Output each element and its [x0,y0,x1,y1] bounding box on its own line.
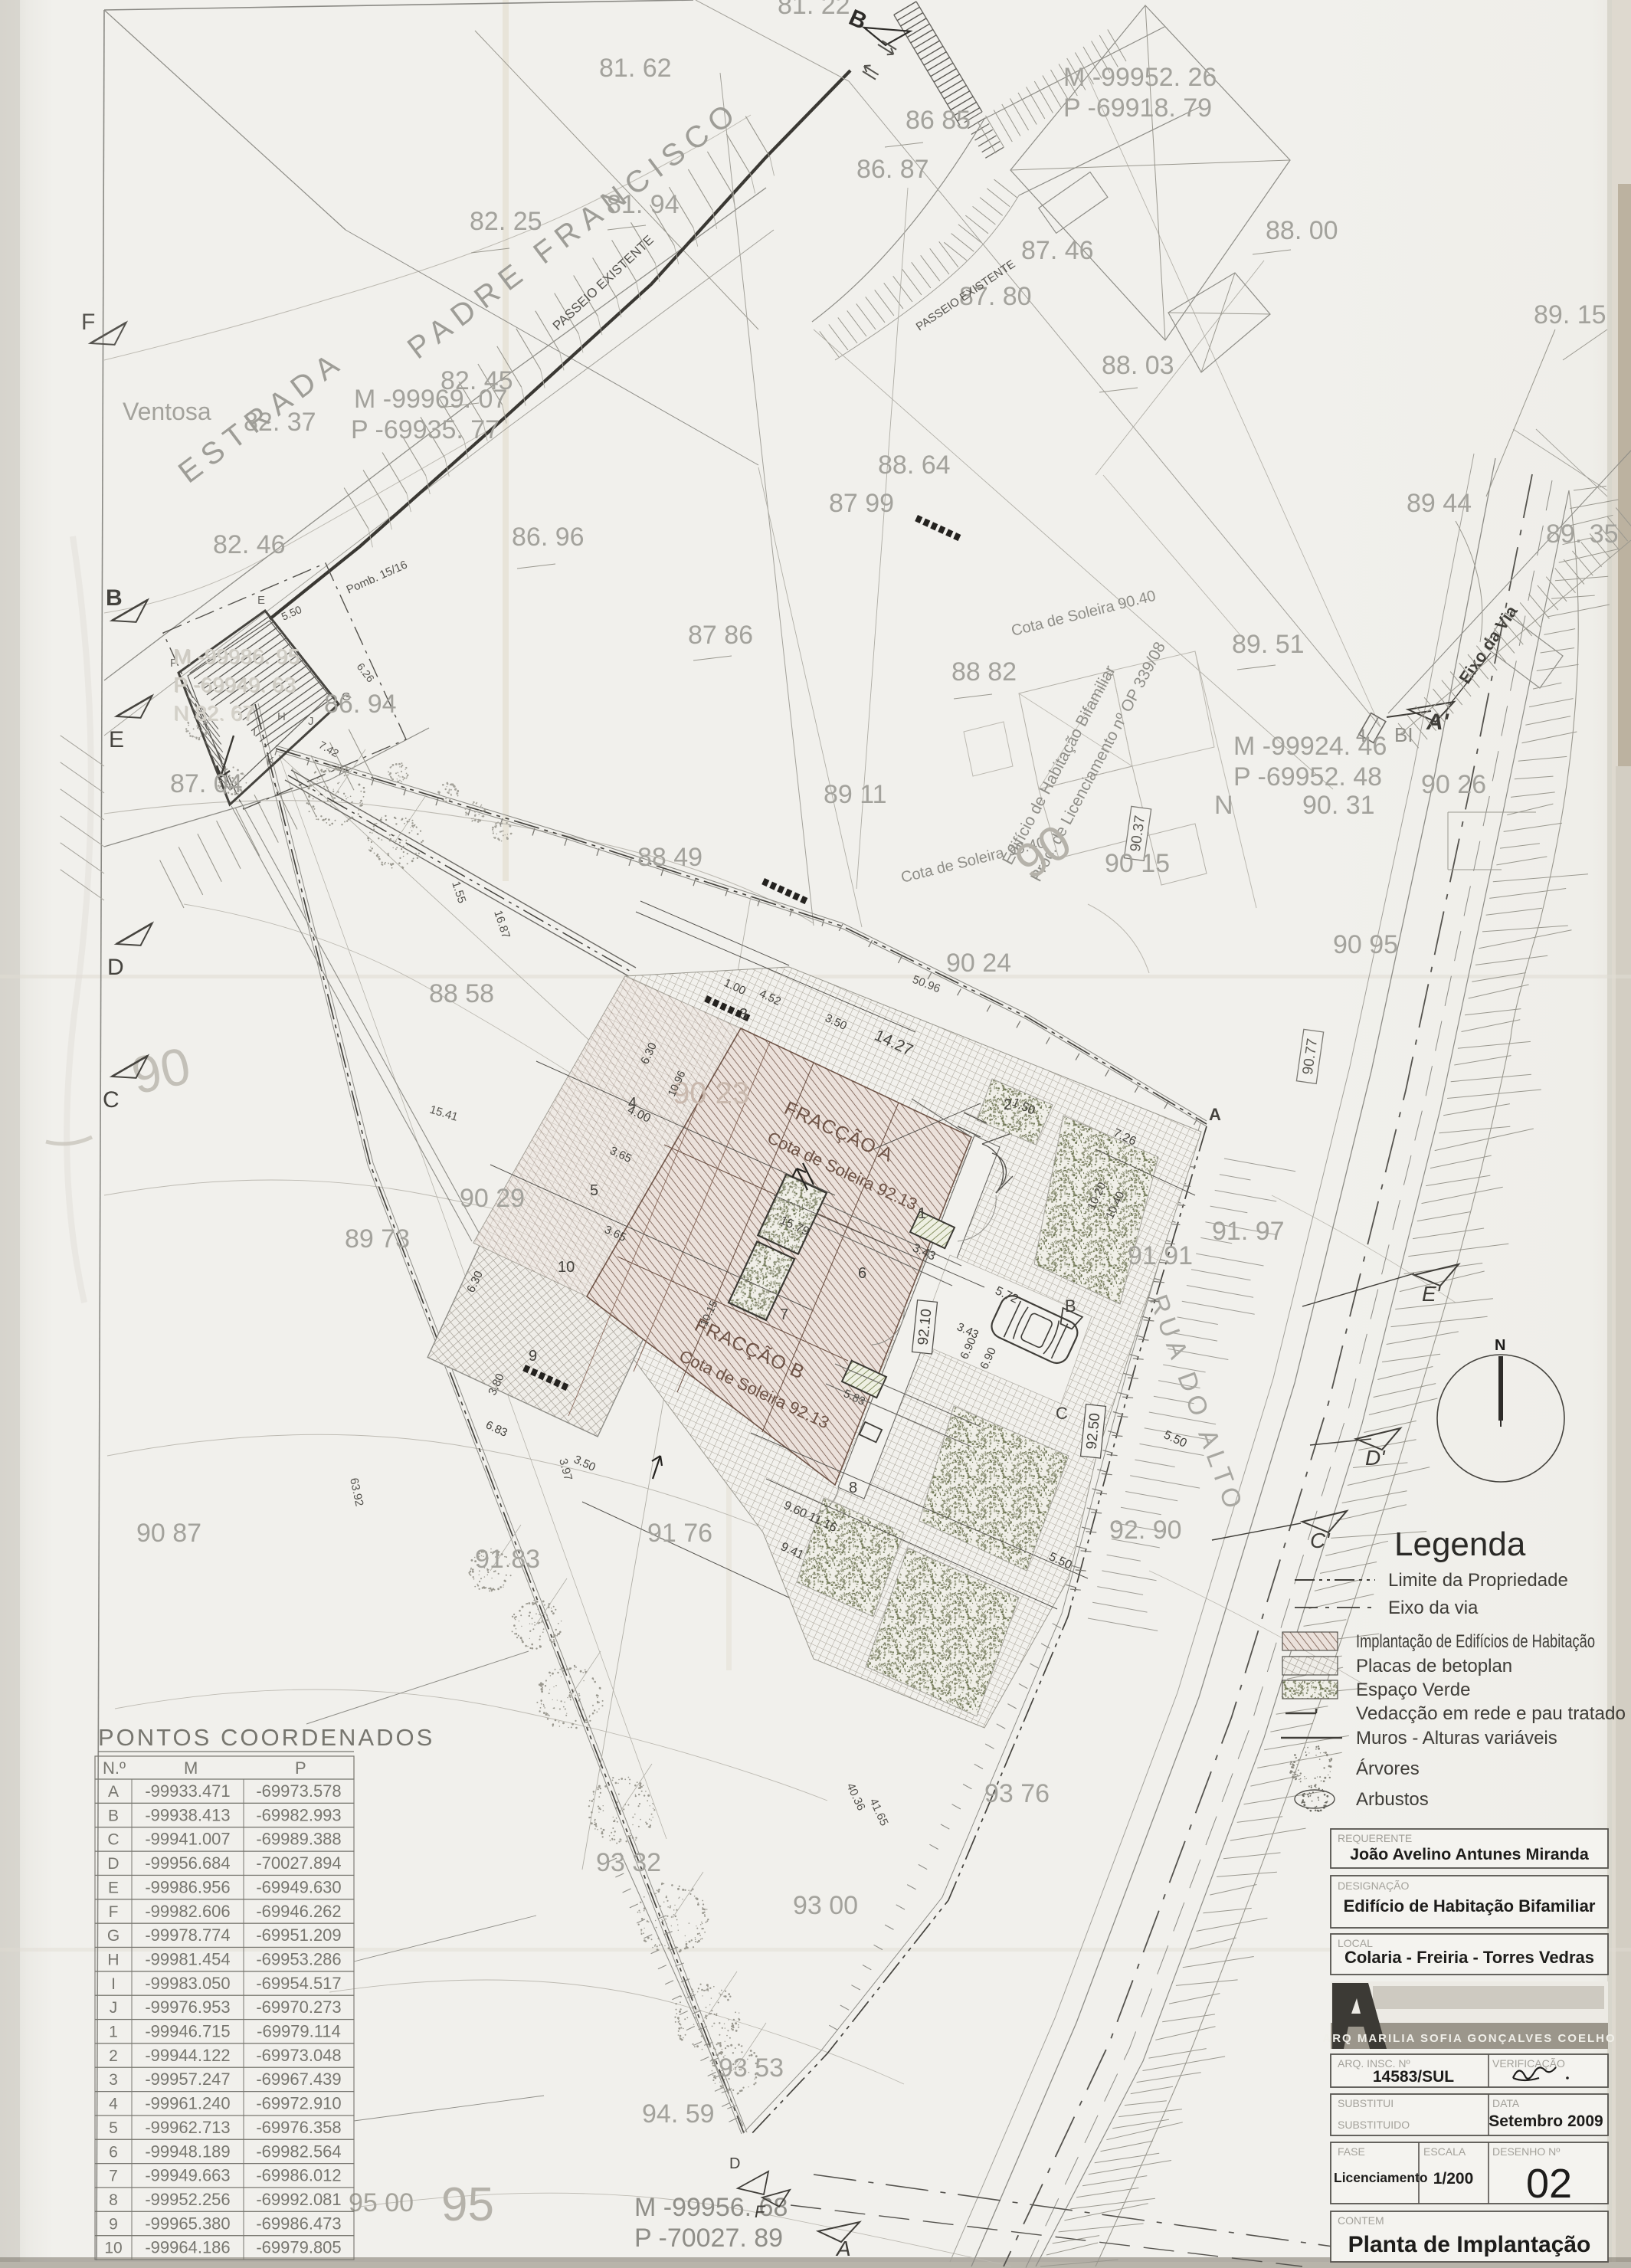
svg-text:A: A [835,2237,851,2260]
svg-text:91 91: 91 91 [1128,1241,1193,1270]
svg-text:Eixo da via: Eixo da via [1388,1598,1479,1618]
svg-text:82. 25: 82. 25 [470,207,542,236]
svg-text:88. 00: 88. 00 [1266,216,1338,245]
svg-text:-69973.578: -69973.578 [256,1781,341,1801]
svg-text:-69953.286: -69953.286 [256,1949,341,1968]
svg-text:-69972.910: -69972.910 [256,2094,341,2113]
svg-text:-69970.273: -69970.273 [256,1998,341,2017]
svg-text:H: H [107,1951,119,1968]
svg-text:82. 46: 82. 46 [213,530,286,559]
svg-text:-69973.048: -69973.048 [256,2046,341,2065]
svg-text:Implantação de Edifícios de Ha: Implantação de Edifícios de Habitação [1356,1631,1595,1652]
svg-text:10: 10 [104,2240,122,2257]
svg-text:N 82. 67: N 82. 67 [174,702,255,726]
svg-text:-69989.388: -69989.388 [256,1830,341,1849]
svg-text:M -99969. 07: M -99969. 07 [354,385,507,414]
svg-text:Colaria - Freiria - Torres Ved: Colaria - Freiria - Torres Vedras [1344,1948,1594,1967]
svg-text:Limite da Propriedade: Limite da Propriedade [1388,1570,1568,1591]
svg-text:93 00: 93 00 [793,1891,858,1920]
svg-text:89. 35: 89. 35 [1546,519,1619,549]
svg-text:6: 6 [858,1265,866,1282]
svg-text:90. 31: 90. 31 [1302,791,1375,820]
svg-text:-99941.007: -99941.007 [145,1830,230,1849]
svg-text:93 32: 93 32 [596,1848,661,1877]
svg-text:REQUERENTE: REQUERENTE [1338,1832,1412,1844]
svg-text:-69979.805: -69979.805 [256,2238,341,2257]
svg-text:-99956.684: -99956.684 [145,1853,230,1873]
svg-text:-99978.774: -99978.774 [145,1926,230,1945]
svg-text:2: 2 [1004,1096,1012,1113]
svg-text:-69986.473: -69986.473 [256,2214,341,2233]
svg-text:F: F [81,310,95,335]
svg-text:ARQ MARILIA SOFIA GONÇALVES: ARQ MARILIA SOFIA GONÇALVES COELHO [1322,2032,1616,2045]
svg-text:-99964.186: -99964.186 [145,2238,230,2257]
svg-text:A: A [108,1783,119,1801]
svg-text:M -99986. 95: M -99986. 95 [174,645,300,669]
svg-text:N: N [1214,791,1233,820]
svg-text:-99957.247: -99957.247 [145,2070,230,2089]
svg-text:93 53: 93 53 [719,2053,784,2083]
svg-text:-69982.993: -69982.993 [256,1805,341,1824]
svg-text:-99986.956: -99986.956 [145,1877,230,1896]
svg-text:-70027.894: -70027.894 [256,1853,341,1873]
svg-text:E: E [109,727,124,752]
svg-text:90 26: 90 26 [1421,770,1486,799]
svg-text:VERIFICAÇÃO: VERIFICAÇÃO [1492,2057,1565,2070]
svg-text:8: 8 [109,2191,118,2209]
svg-text:-99948.189: -99948.189 [145,2142,230,2161]
svg-text:CONTEM: CONTEM [1338,2214,1384,2227]
svg-text:-99965.380: -99965.380 [145,2214,230,2233]
svg-text:Planta de Implantação: Planta de Implantação [1348,2232,1591,2257]
svg-text:89 73: 89 73 [345,1224,410,1254]
svg-text:PONTOS COORDENADOS: PONTOS COORDENADOS [98,1724,434,1751]
svg-text:86. 94: 86. 94 [324,690,397,719]
svg-text:90 87: 90 87 [136,1519,201,1548]
svg-text:-99952.256: -99952.256 [145,2190,230,2209]
svg-text:Espaço Verde: Espaço Verde [1356,1680,1470,1700]
svg-text:86. 87: 86. 87 [856,155,929,184]
svg-text:10: 10 [558,1259,575,1276]
svg-text:90 29: 90 29 [460,1184,525,1213]
svg-text:Legenda: Legenda [1394,1526,1526,1563]
svg-text:G: G [107,1927,120,1945]
svg-text:E: E [257,594,265,607]
svg-text:-69992.081: -69992.081 [256,2190,341,2209]
svg-text:D': D' [1365,1446,1386,1470]
svg-text:D: D [107,1855,119,1873]
svg-text:91. 97: 91. 97 [1212,1217,1285,1246]
svg-text:89 11: 89 11 [824,780,887,809]
svg-text:86. 96: 86. 96 [512,523,585,552]
svg-text:A: A [1209,1105,1221,1124]
svg-text:92. 90: 92. 90 [1109,1516,1182,1545]
svg-text:D: D [107,955,124,980]
svg-text:94. 59: 94. 59 [642,2099,715,2129]
svg-text:90 15: 90 15 [1105,849,1170,878]
svg-text:C': C' [1310,1529,1331,1552]
svg-text:87 86: 87 86 [688,621,753,650]
svg-text:4: 4 [628,1095,637,1112]
svg-text:M -99952. 26: M -99952. 26 [1063,63,1217,92]
svg-text:-99976.953: -99976.953 [145,1998,230,2017]
svg-text:FASE: FASE [1338,2145,1365,2158]
svg-text:-99933.471: -99933.471 [145,1781,230,1801]
svg-text:Setembro 2009: Setembro 2009 [1489,2112,1603,2130]
svg-text:5: 5 [109,2119,118,2137]
svg-text:B: B [106,585,123,611]
svg-text:ESCALA: ESCALA [1423,2145,1466,2158]
svg-text:-69949.630: -69949.630 [256,1877,341,1896]
svg-text:SUBSTITUI: SUBSTITUI [1338,2097,1394,2109]
svg-text:Placas de betoplan: Placas de betoplan [1356,1656,1512,1676]
svg-text:F: F [755,2202,766,2221]
svg-text:02: 02 [1526,2161,1572,2207]
svg-text:-99983.050: -99983.050 [145,1974,230,1993]
svg-text:-69982.564: -69982.564 [256,2142,341,2161]
svg-text:Árvores: Árvores [1356,1758,1420,1779]
svg-text:95: 95 [441,2178,494,2231]
svg-text:-69979.114: -69979.114 [257,2022,341,2041]
svg-text:-69954.517: -69954.517 [256,1974,341,1993]
svg-text:DESENHO Nº: DESENHO Nº [1492,2145,1560,2158]
svg-text:5: 5 [590,1182,598,1199]
svg-text:88 58: 88 58 [429,979,494,1008]
svg-text:J: J [110,1999,118,2017]
svg-text:-99962.713: -99962.713 [145,2118,230,2137]
svg-text:J: J [308,715,314,728]
svg-text:E': E' [1422,1282,1442,1306]
svg-text:F: F [109,1903,119,1921]
svg-text:93 76: 93 76 [984,1779,1050,1808]
svg-text:B: B [108,1807,119,1824]
svg-text:-99982.606: -99982.606 [145,1902,230,1921]
svg-text:89. 51: 89. 51 [1232,630,1305,659]
svg-text:João Avelino Antunes Miranda: João Avelino Antunes Miranda [1350,1845,1590,1863]
svg-text:1: 1 [918,1205,926,1222]
svg-text:Licenciamento: Licenciamento [1334,2170,1428,2185]
svg-text:-99938.413: -99938.413 [145,1805,230,1824]
svg-text:I: I [111,1975,116,1993]
svg-text:-99946.715: -99946.715 [145,2022,230,2041]
svg-text:7: 7 [109,2168,118,2185]
svg-text:3: 3 [109,2071,118,2089]
svg-text:-69951.209: -69951.209 [256,1926,341,1945]
svg-text:Vedacção em rede e pau tratado: Vedacção em rede e pau tratado [1356,1703,1626,1724]
svg-text:3: 3 [739,1006,748,1023]
svg-text:-99944.122: -99944.122 [145,2046,230,2065]
svg-text:SUBSTITUIDO: SUBSTITUIDO [1338,2119,1410,2131]
svg-text:7: 7 [780,1306,788,1323]
svg-text:Muros - Alturas variáveis: Muros - Alturas variáveis [1356,1728,1557,1749]
svg-text:Ventosa: Ventosa [123,398,211,425]
svg-text:N: N [1495,1337,1505,1354]
svg-text:P: P [295,1758,306,1778]
svg-text:Arbustos: Arbustos [1356,1789,1429,1810]
svg-text:81. 62: 81. 62 [599,54,672,83]
svg-text:86 85: 86 85 [906,106,971,135]
svg-text:BI: BI [1394,723,1413,746]
svg-text:-99949.663: -99949.663 [145,2166,230,2185]
svg-text:4: 4 [109,2096,118,2113]
svg-text:88 82: 88 82 [951,657,1017,687]
svg-text:88. 64: 88. 64 [878,451,951,480]
svg-text:DESIGNAÇÃO: DESIGNAÇÃO [1338,1880,1409,1892]
svg-text:C: C [107,1831,119,1849]
svg-text:P -70027. 89: P -70027. 89 [634,2224,783,2253]
svg-text:1: 1 [109,2024,118,2041]
svg-text:9: 9 [529,1348,537,1365]
svg-text:M: M [184,1758,198,1778]
svg-text:-99981.454: -99981.454 [145,1949,230,1968]
svg-text:95 00: 95 00 [349,2188,414,2217]
svg-text:91 76: 91 76 [647,1519,712,1548]
svg-text:90 24: 90 24 [946,949,1011,978]
svg-text:88. 03: 88. 03 [1102,351,1174,380]
svg-text:88 49: 88 49 [637,843,703,872]
svg-text:E: E [108,1879,119,1896]
svg-text:H: H [277,710,286,723]
svg-text:8: 8 [849,1480,857,1496]
svg-text:M -99924. 46: M -99924. 46 [1233,732,1387,761]
svg-text:9: 9 [109,2215,118,2233]
svg-text:14583/SUL: 14583/SUL [1373,2068,1454,2086]
svg-text:I: I [253,726,256,739]
svg-text:1/200: 1/200 [1433,2170,1474,2188]
svg-text:87 99: 87 99 [829,489,894,518]
svg-text:DATA: DATA [1492,2097,1520,2109]
svg-text:90 95: 90 95 [1333,930,1398,959]
svg-text:89 44: 89 44 [1407,489,1472,518]
svg-text:-69986.012: -69986.012 [256,2166,341,2185]
svg-text:2: 2 [109,2047,118,2065]
svg-text:-69976.358: -69976.358 [256,2118,341,2137]
svg-text:81. 22: 81. 22 [778,0,850,20]
svg-text:91 83: 91 83 [475,1545,540,1574]
svg-text:-99961.240: -99961.240 [145,2094,230,2113]
svg-text:D: D [729,2155,740,2172]
svg-text:N.º: N.º [103,1758,126,1778]
svg-text:K: K [267,755,274,768]
svg-text:-69946.262: -69946.262 [256,1902,341,1921]
svg-text:P -69952. 48: P -69952. 48 [1233,762,1382,792]
svg-text:-69967.439: -69967.439 [256,2070,341,2089]
svg-text:Edifício de Habitação Bifamili: Edifício de Habitação Bifamiliar [1344,1896,1596,1916]
svg-text:90: 90 [126,1037,195,1106]
svg-text:P -69918. 79: P -69918. 79 [1063,93,1212,123]
svg-text:P -69935. 77: P -69935. 77 [351,415,499,444]
svg-text:89. 15: 89. 15 [1534,300,1606,329]
svg-text:87. 04: 87. 04 [170,769,243,798]
svg-text:C: C [103,1087,120,1113]
svg-text:P -69949. 63: P -69949. 63 [174,674,296,697]
svg-text:C: C [1056,1404,1068,1423]
svg-text:6: 6 [109,2143,118,2161]
svg-text:90 23: 90 23 [673,1077,749,1110]
svg-text:87. 46: 87. 46 [1021,236,1094,265]
